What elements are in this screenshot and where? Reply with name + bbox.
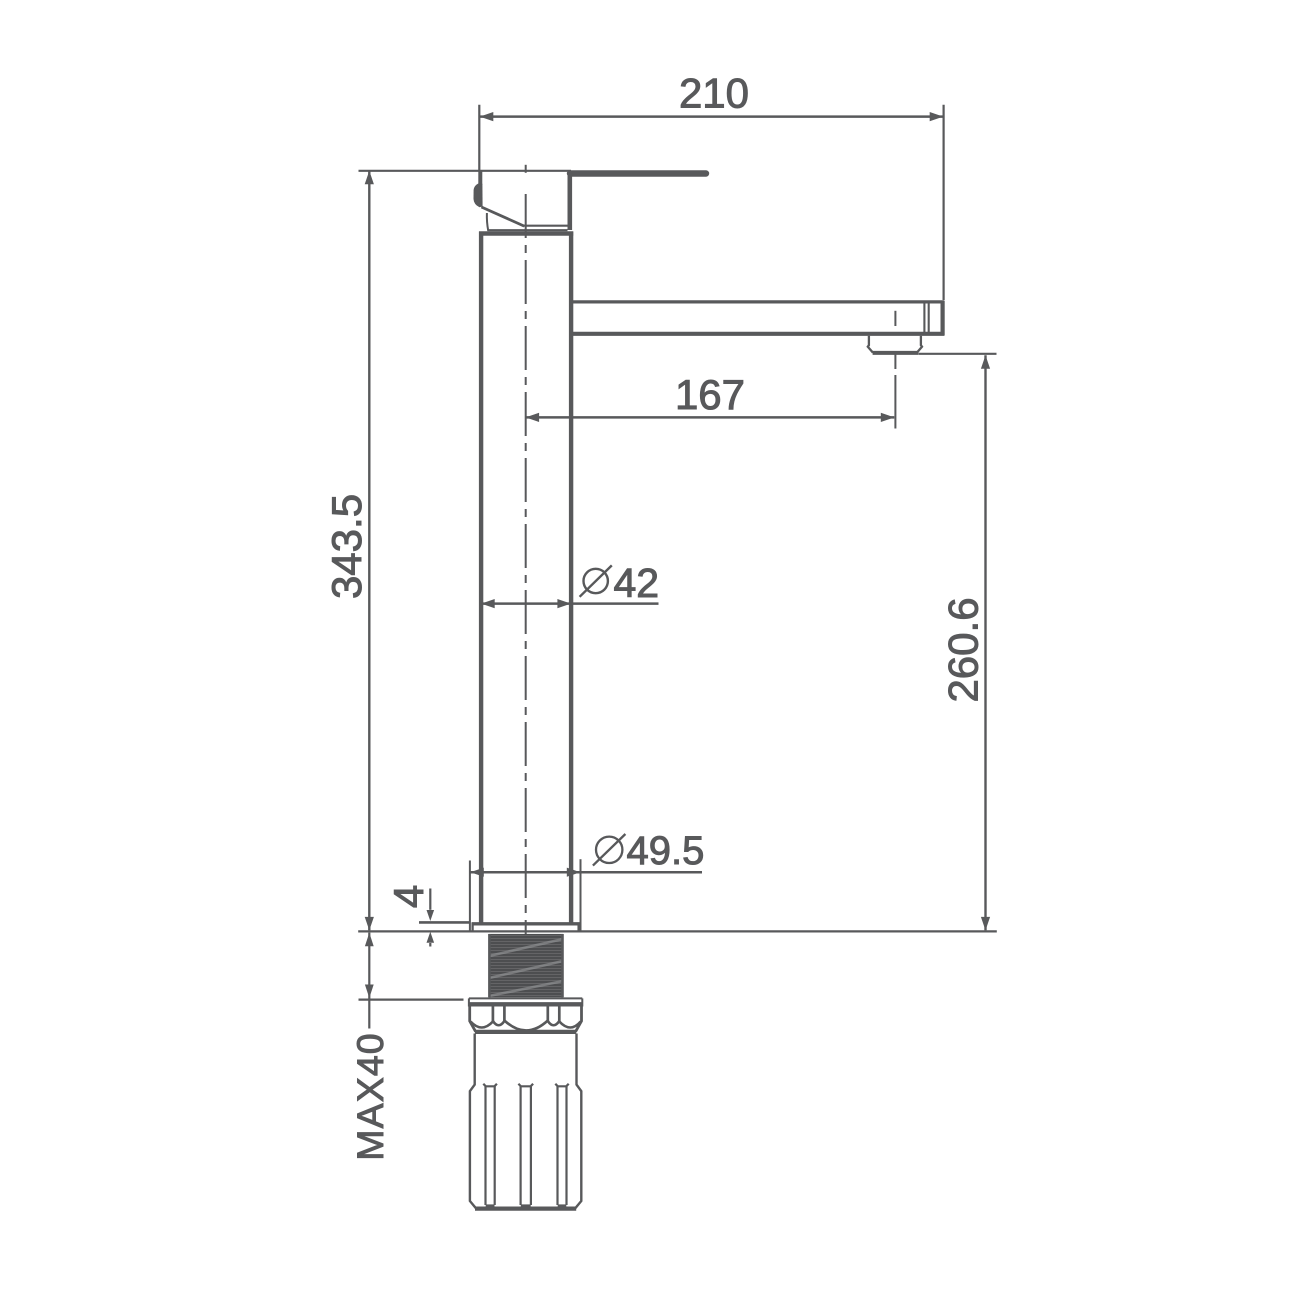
svg-text:MAX40: MAX40 [349,1032,391,1160]
svg-text:210: 210 [679,70,749,117]
svg-text:343.5: 343.5 [323,494,370,599]
svg-text:167: 167 [675,371,745,418]
svg-text:49.5: 49.5 [627,829,705,873]
svg-text:4: 4 [385,885,432,908]
svg-text:260.6: 260.6 [940,597,987,702]
svg-text:42: 42 [614,560,660,606]
